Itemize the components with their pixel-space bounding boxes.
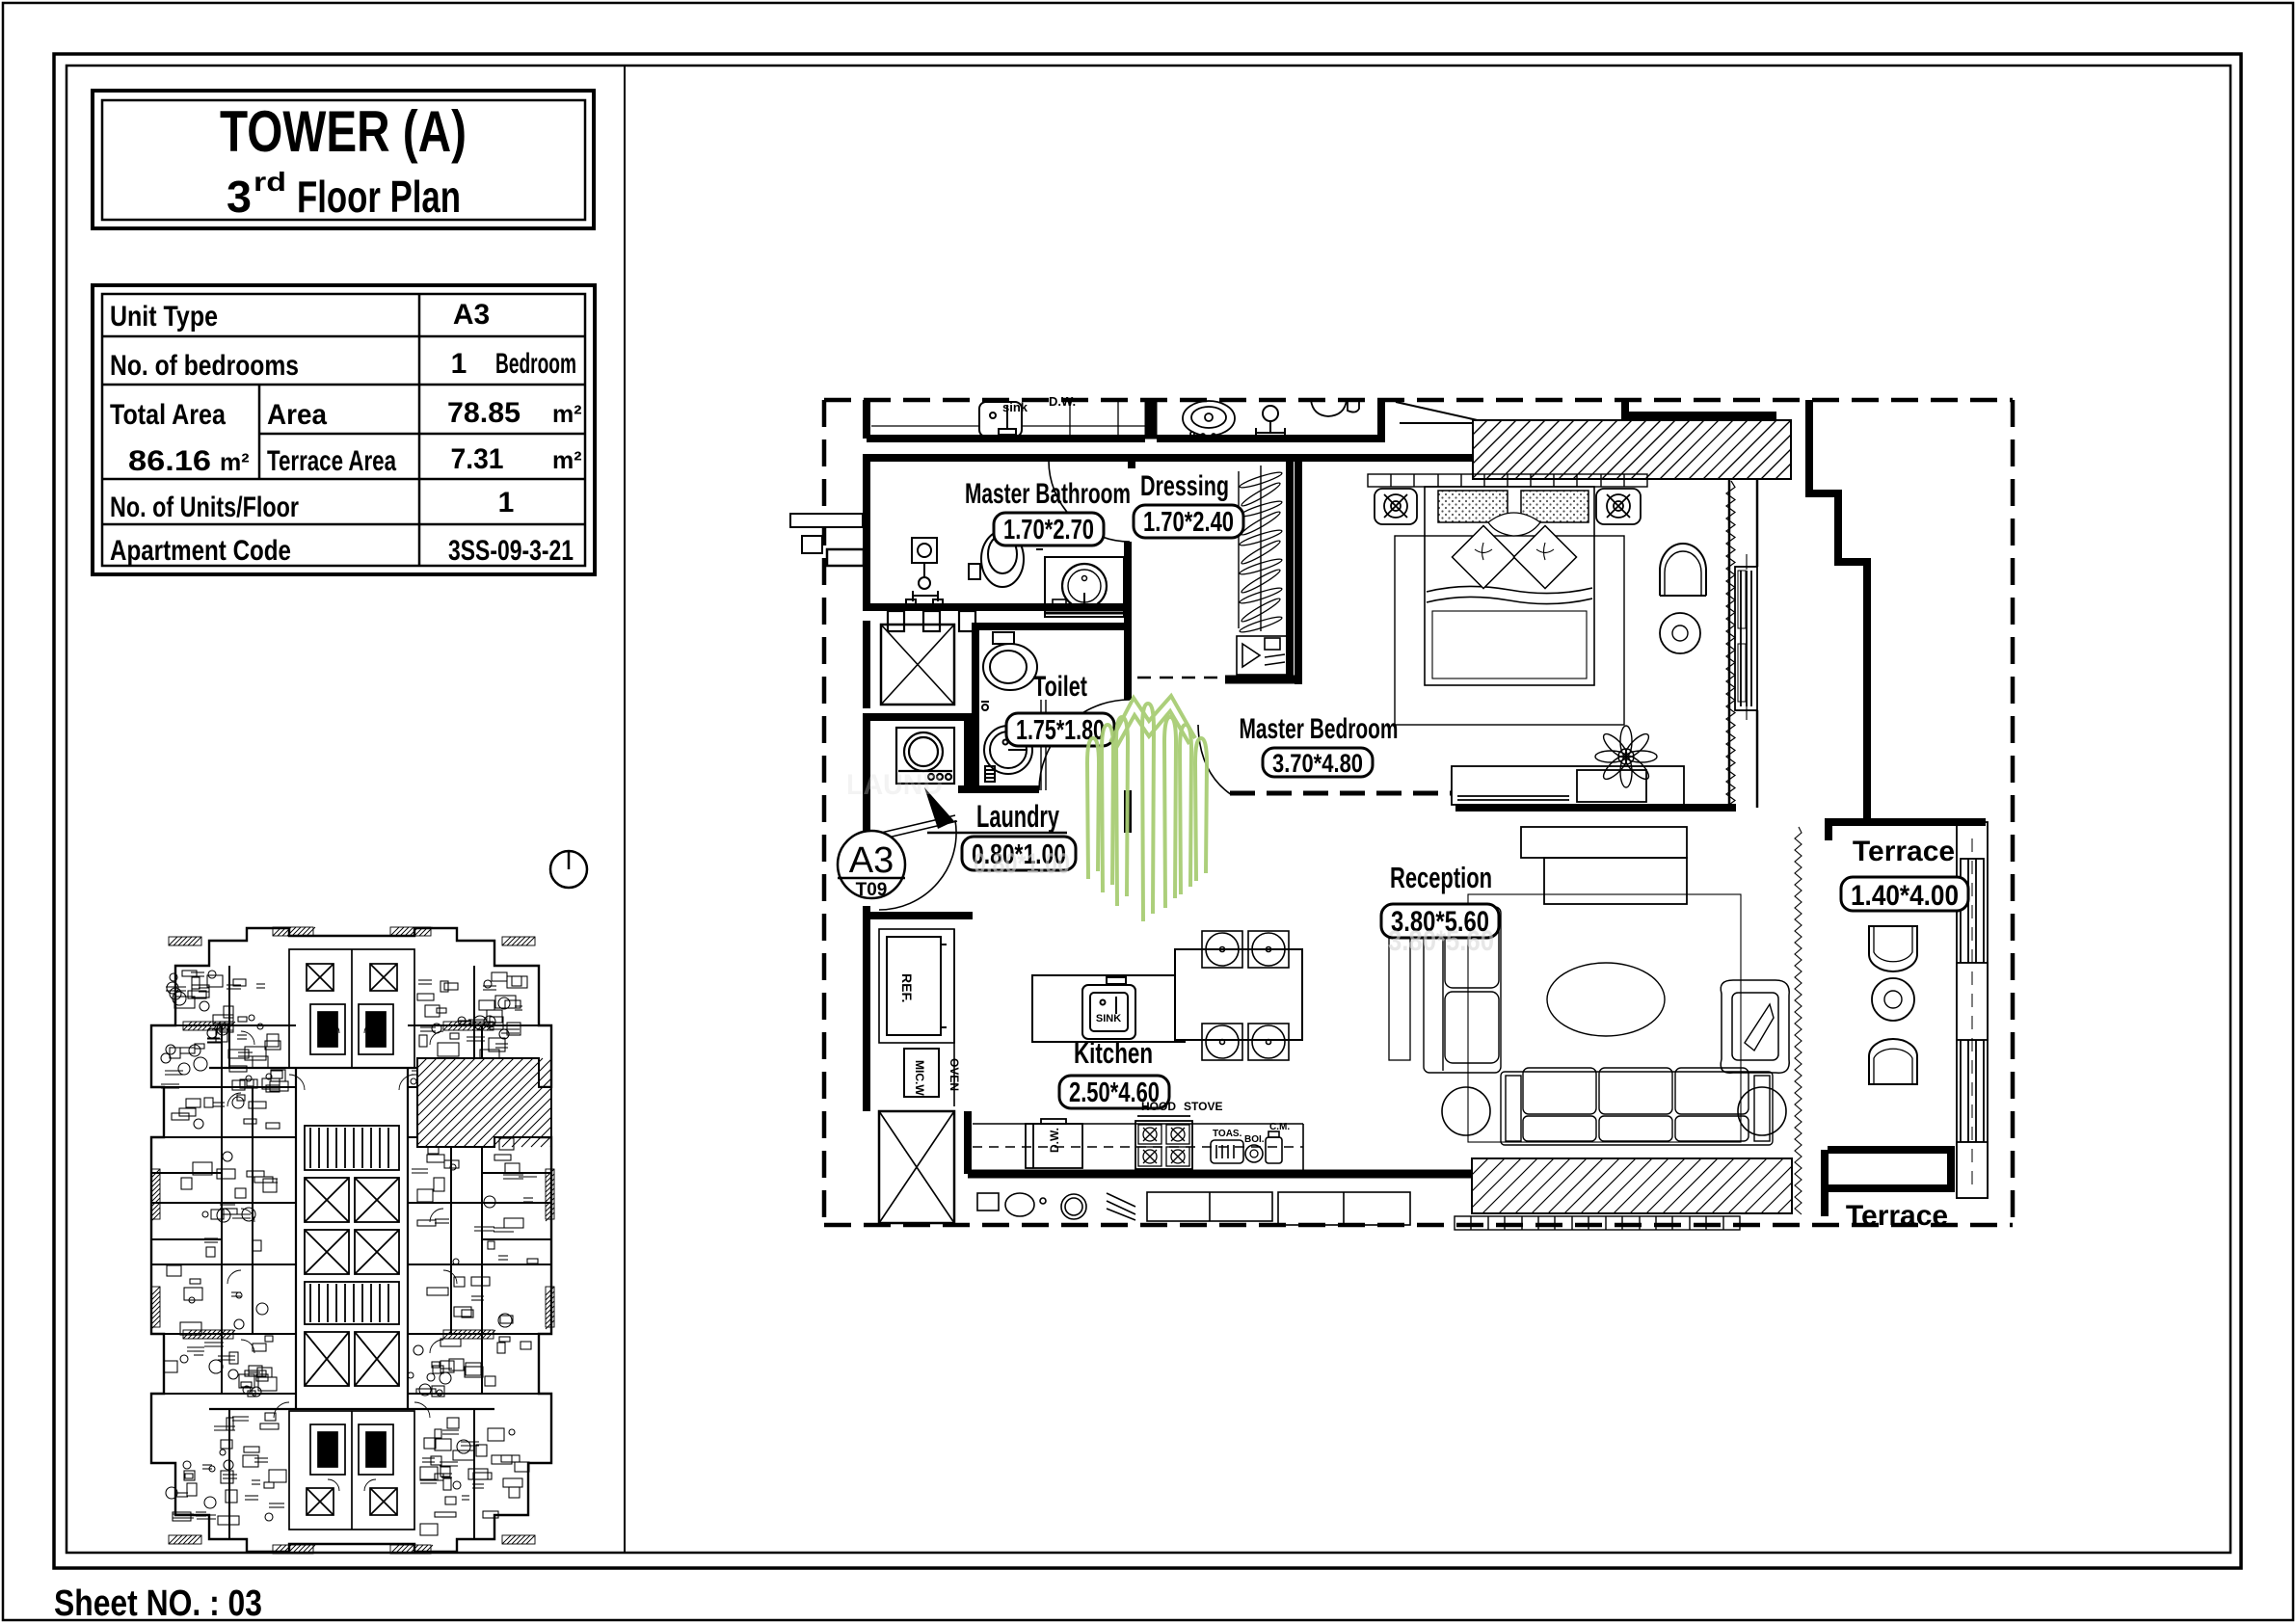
svg-text:m²: m²	[552, 401, 582, 428]
svg-text:3.70*4.80: 3.70*4.80	[1272, 749, 1363, 778]
svg-text:m²: m²	[220, 449, 250, 476]
svg-text:A3: A3	[849, 840, 894, 881]
svg-text:Reception: Reception	[1390, 861, 1492, 894]
svg-text:sink: sink	[1002, 400, 1028, 414]
svg-text:Apartment Code: Apartment Code	[110, 535, 291, 567]
svg-text:Floor Plan: Floor Plan	[297, 172, 461, 222]
svg-text:3: 3	[227, 172, 252, 222]
svg-text:Area: Area	[267, 399, 327, 431]
svg-text:1.70*2.70: 1.70*2.70	[1003, 515, 1094, 545]
svg-text:Laundry: Laundry	[976, 799, 1059, 834]
svg-text:TOAS.: TOAS.	[1213, 1129, 1242, 1139]
svg-text:Unit Type: Unit Type	[110, 301, 218, 333]
svg-text:Total Area: Total Area	[110, 399, 226, 431]
svg-text:Sheet NO. : 03: Sheet NO. : 03	[54, 1583, 262, 1623]
svg-text:STOVE: STOVE	[1184, 1100, 1222, 1113]
svg-text:Master Bathroom: Master Bathroom	[965, 478, 1131, 510]
svg-text:No. of Units/Floor: No. of Units/Floor	[110, 492, 299, 523]
svg-text:TOWER (A): TOWER (A)	[220, 99, 467, 164]
svg-text:SINK: SINK	[1096, 1013, 1121, 1024]
svg-text:REF.: REF.	[899, 973, 915, 1002]
svg-text:Terrace: Terrace	[1853, 836, 1955, 867]
svg-text:LAUND: LAUND	[846, 769, 943, 801]
svg-text:1: 1	[451, 348, 467, 380]
svg-text:1: 1	[498, 487, 515, 519]
svg-text:D.W.: D.W.	[1048, 1128, 1061, 1153]
svg-text:MIC.W: MIC.W	[913, 1060, 926, 1096]
svg-text:C.M.: C.M.	[1269, 1122, 1290, 1132]
svg-text:BOI.: BOI.	[1244, 1134, 1265, 1145]
svg-text:No. of bedrooms: No. of bedrooms	[110, 350, 299, 382]
svg-text:Bedroom: Bedroom	[495, 348, 576, 380]
svg-text:0.80*1.00: 0.80*1.00	[974, 848, 1070, 880]
svg-text:Toilet: Toilet	[1033, 671, 1087, 703]
svg-text:m²: m²	[552, 447, 582, 474]
svg-text:D.W.: D.W.	[1049, 394, 1076, 409]
svg-text:Terrace: Terrace	[1846, 1200, 1948, 1232]
svg-text:7.31: 7.31	[451, 443, 504, 475]
svg-text:3SS-09-3-21: 3SS-09-3-21	[448, 535, 574, 567]
svg-text:1.70*2.40: 1.70*2.40	[1143, 507, 1234, 538]
svg-text:78.85: 78.85	[447, 397, 521, 429]
svg-text:A3: A3	[453, 299, 490, 331]
svg-text:1.40*4.00: 1.40*4.00	[1851, 880, 1959, 912]
svg-text:HOOD: HOOD	[1141, 1100, 1176, 1113]
svg-text:Dressing: Dressing	[1140, 470, 1229, 502]
svg-text:3.80*5.60: 3.80*5.60	[1388, 925, 1494, 957]
svg-text:Master Bedroom: Master Bedroom	[1240, 713, 1399, 745]
svg-text:T09: T09	[856, 880, 888, 900]
svg-text:rd: rd	[254, 167, 286, 197]
svg-text:Terrace Area: Terrace Area	[267, 445, 396, 477]
svg-text:86.16: 86.16	[128, 445, 211, 477]
svg-text:Kitchen: Kitchen	[1074, 1036, 1153, 1070]
